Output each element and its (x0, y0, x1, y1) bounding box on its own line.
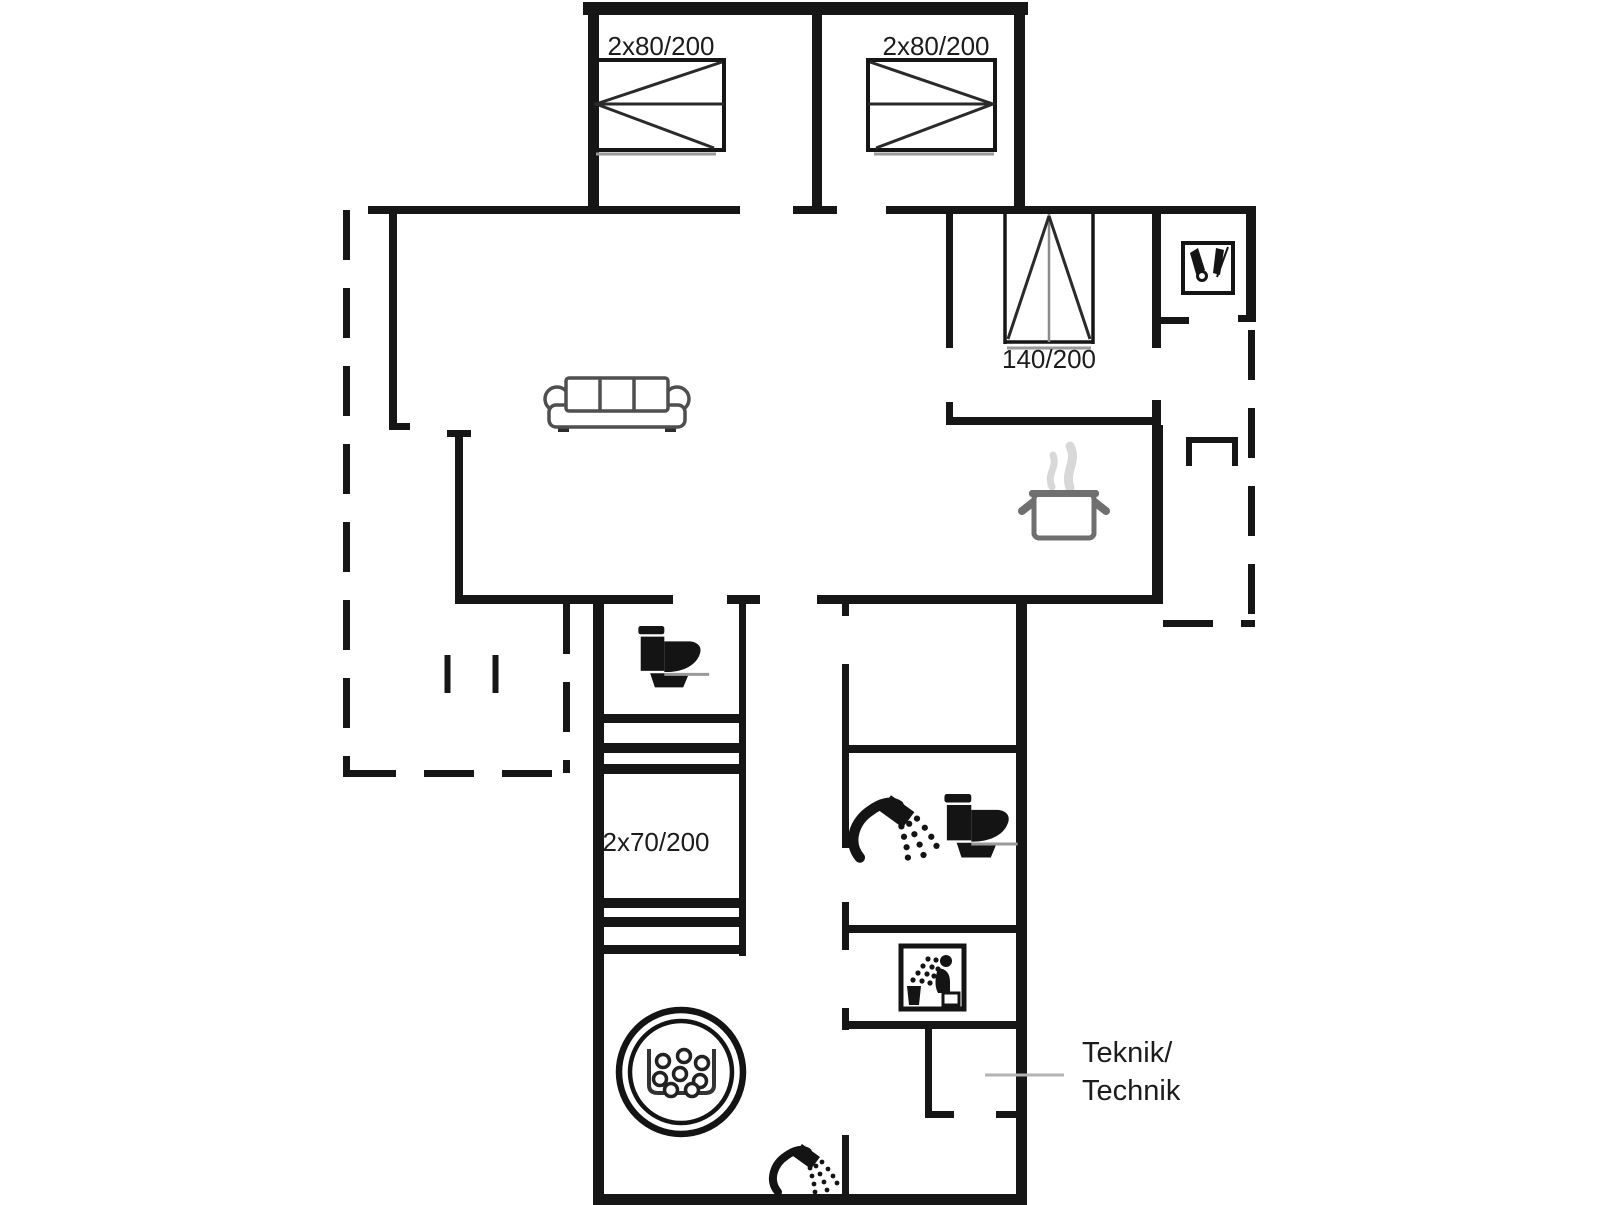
shower-icon-bathroom (853, 795, 939, 861)
terrace-fixture (1189, 440, 1235, 466)
wardrobe-icon (1183, 243, 1233, 293)
terrace-right-boundary (1163, 330, 1255, 628)
bunk-size-label: 2x70/200 (603, 827, 710, 857)
technic-label-line1: Teknik/ (1082, 1037, 1173, 1069)
bed-size-label-right: 2x80/200 (883, 31, 990, 61)
technic-label-line2: Technik (1082, 1075, 1181, 1107)
hot-tub-icon (619, 1010, 743, 1134)
walls (368, 2, 1256, 1205)
steam-icon (1068, 446, 1072, 488)
terrace-bench-marks (448, 655, 496, 693)
bunk-bed-top-icon (601, 743, 740, 774)
toilet-icon-bathroom (944, 794, 1017, 857)
sofa-icon (545, 378, 689, 432)
toilet-icon-wc (638, 626, 709, 687)
floor-plan-drawing: 2x80/200 2x80/200 140/200 2x70/200 Tekni… (0, 0, 1606, 1205)
floor-plan: 2x80/200 2x80/200 140/200 2x70/200 Tekni… (0, 0, 1606, 1205)
sauna-icon (901, 946, 964, 1009)
single-bed-icon (1005, 214, 1093, 348)
shower-icon-bottom (773, 1144, 839, 1194)
bunk-bed-bottom-icon (601, 898, 740, 927)
cooking-pot-icon (1022, 446, 1106, 538)
double-bed-right-icon (868, 60, 995, 154)
bed-size-label-left: 2x80/200 (608, 31, 715, 61)
bed-size-label-small: 140/200 (1002, 344, 1096, 374)
steam-icon (1050, 455, 1054, 487)
double-bed-left-icon (594, 60, 724, 154)
